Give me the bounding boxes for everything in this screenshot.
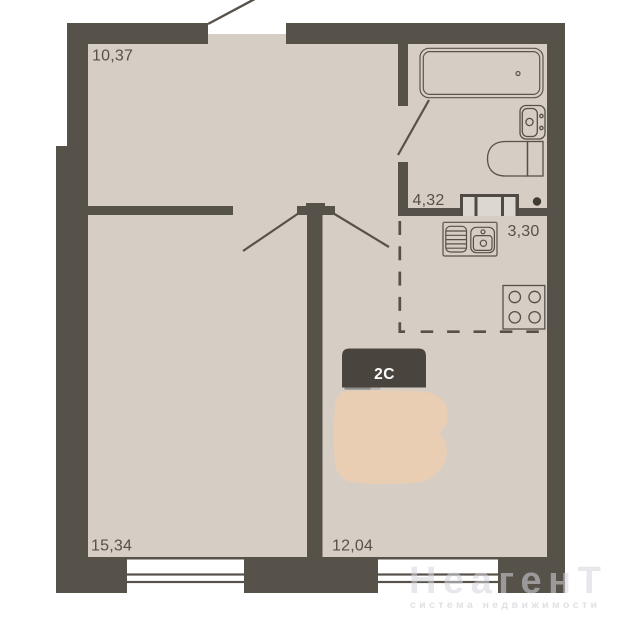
svg-text:12,04: 12,04 (332, 537, 373, 554)
svg-text:2C: 2C (374, 366, 395, 383)
svg-text:3,30: 3,30 (508, 223, 540, 240)
svg-text:НеагенТ: НеагенТ (409, 560, 607, 602)
svg-text:система недвижимости: система недвижимости (410, 599, 600, 611)
svg-text:4,32: 4,32 (413, 192, 445, 209)
svg-text:10,37: 10,37 (92, 48, 133, 65)
svg-text:15,34: 15,34 (91, 537, 132, 554)
